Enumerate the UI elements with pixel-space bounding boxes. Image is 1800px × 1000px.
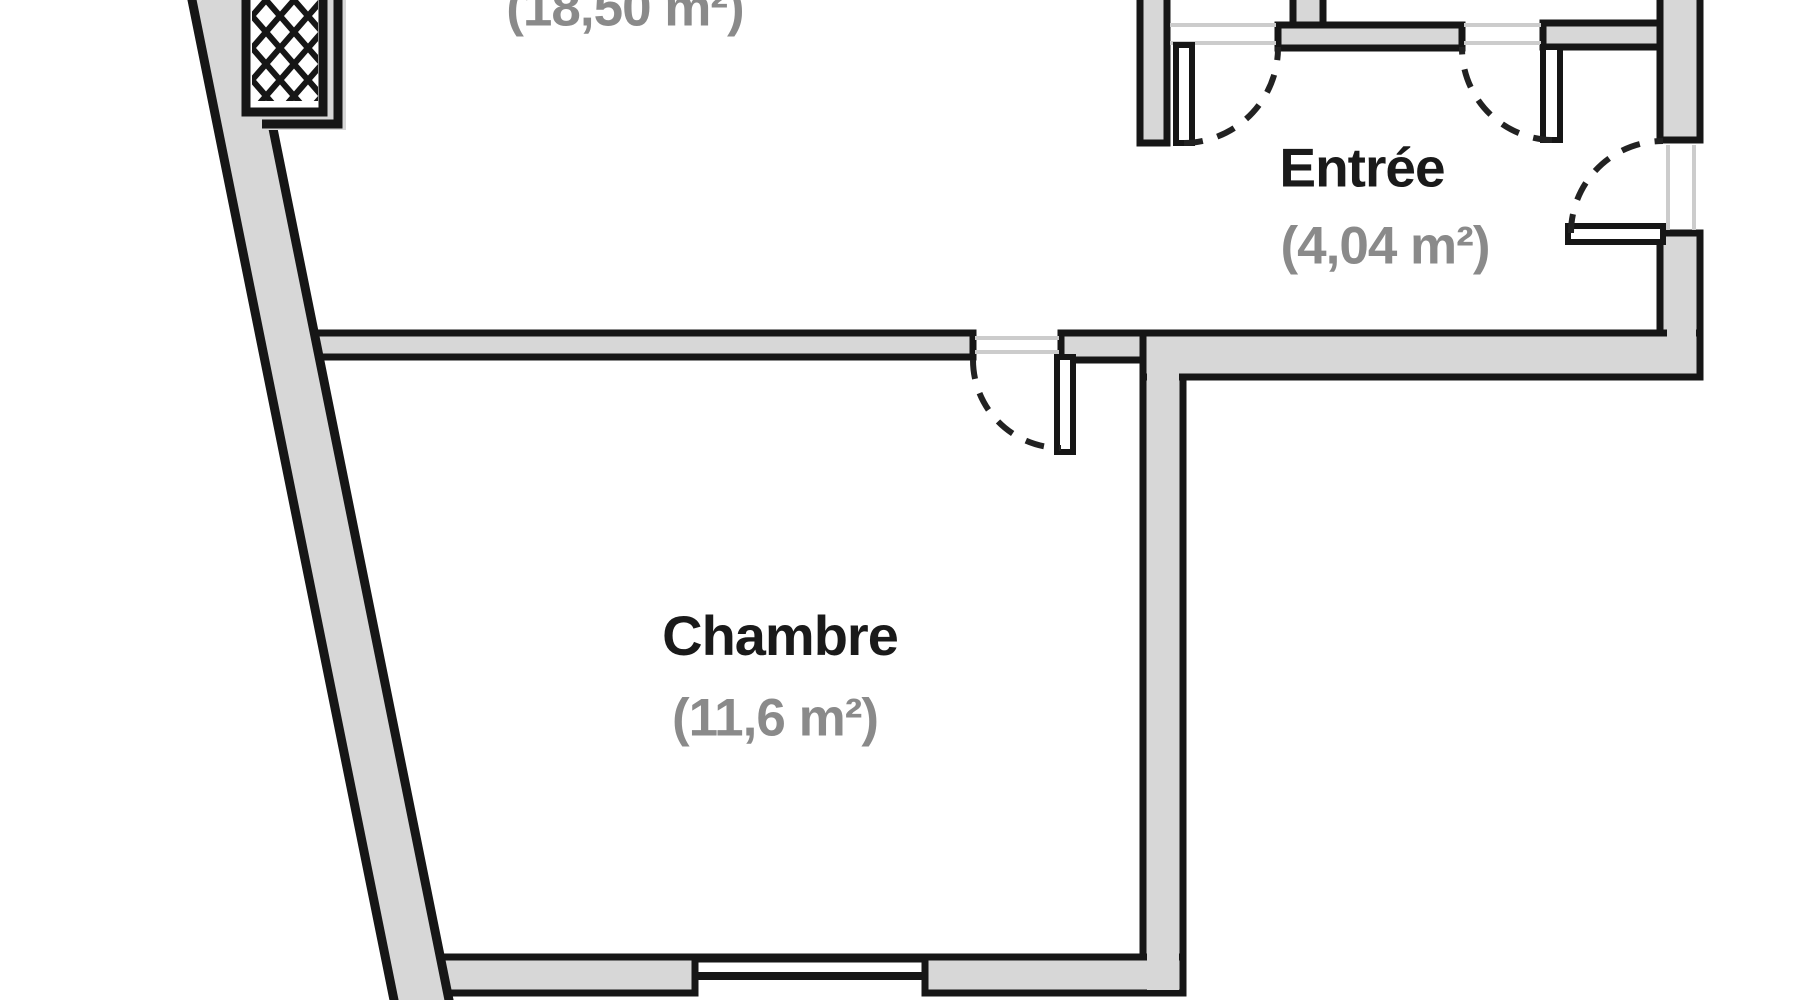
wall-seam-patch (1147, 337, 1179, 381)
room-label-chambre: Chambre (662, 608, 898, 664)
room-area-upper-partial: (18,50 m²) (506, 0, 743, 35)
window (695, 958, 925, 976)
room-area-entree: (4,04 m²) (1281, 220, 1490, 273)
door-leaf-chambre (1057, 357, 1073, 452)
wall-chambre-top (305, 333, 973, 357)
door-swing-arc-chambre (973, 360, 1061, 448)
wall-top-stub (1140, 0, 1167, 143)
floor-plan: (18,50 m²) Entrée (4,04 m²) Chambre (11,… (0, 0, 1800, 1000)
wall-seam-patch (1147, 952, 1179, 990)
wall-right-upper (1660, 0, 1700, 140)
wall-top-bar (1278, 25, 1462, 48)
door-swing-arc-top-right (1462, 47, 1552, 140)
wall-entree-bottom (1143, 333, 1700, 377)
room-label-entree: Entrée (1279, 141, 1444, 196)
wall-slanted-left (190, 0, 450, 1000)
door-swing-arc-entrance (1571, 141, 1663, 233)
wall-top-right-bar (1543, 23, 1663, 47)
floor-plan-drawing (0, 0, 1800, 1000)
door-leaf-top-left (1176, 45, 1192, 143)
wall-chambre-right (1143, 333, 1183, 993)
room-area-chambre: (11,6 m²) (672, 692, 878, 745)
wall-seam-patch (1667, 327, 1696, 338)
wall-chambre-bottom-left (418, 957, 695, 993)
door-leaf-top-right (1543, 47, 1560, 140)
hatched-shaft (242, 0, 346, 130)
wall-chambre-bottom-right (925, 957, 1183, 993)
door-swing-arc-top-left (1184, 47, 1278, 143)
door-leaf-entrance (1568, 226, 1663, 242)
